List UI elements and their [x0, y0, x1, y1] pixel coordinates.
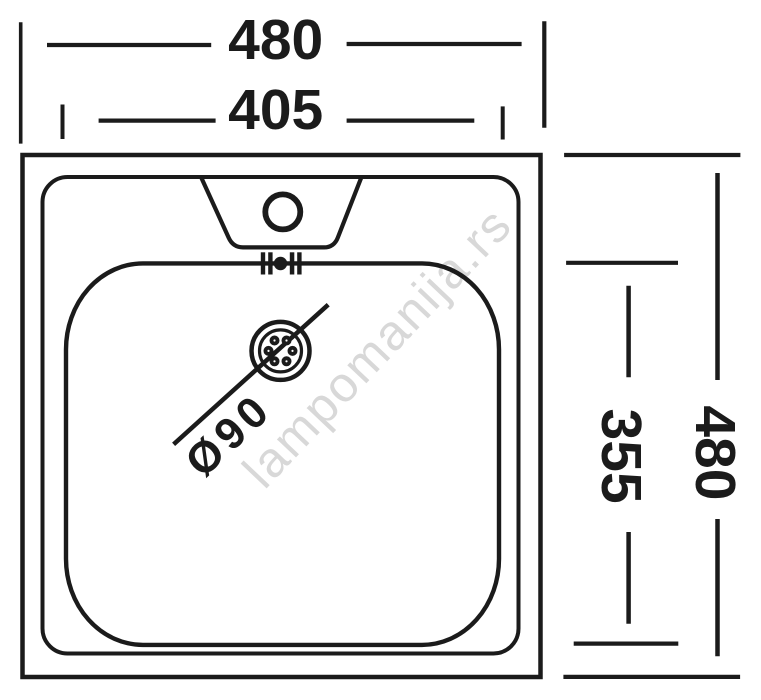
svg-text:355: 355 [589, 409, 653, 504]
svg-text:480: 480 [228, 8, 323, 72]
svg-text:480: 480 [683, 405, 747, 500]
svg-text:405: 405 [228, 78, 323, 142]
